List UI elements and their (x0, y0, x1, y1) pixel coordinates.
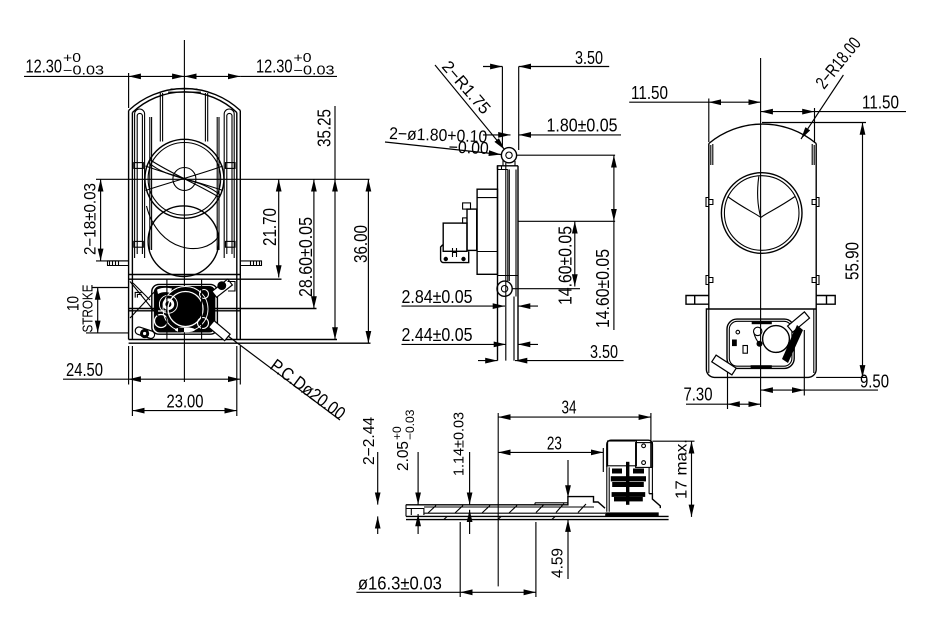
svg-text:1.14±0.03: 1.14±0.03 (451, 412, 468, 476)
svg-text:14.60±0.05: 14.60±0.05 (593, 249, 613, 328)
svg-text:4.59: 4.59 (550, 548, 567, 578)
svg-text:35.25: 35.25 (315, 109, 335, 147)
svg-text:2.84±0.05: 2.84±0.05 (402, 287, 473, 307)
svg-text:2.05: 2.05 (395, 441, 412, 471)
svg-text:7.30: 7.30 (684, 385, 713, 405)
svg-text:34: 34 (562, 398, 577, 418)
svg-text:STROKE: STROKE (80, 285, 97, 333)
svg-text:14.60±0.05: 14.60±0.05 (556, 226, 576, 305)
svg-text:−0.03: −0.03 (403, 409, 417, 440)
svg-text:3.50: 3.50 (575, 48, 603, 68)
svg-text:23: 23 (547, 434, 562, 454)
svg-text:−0.03: −0.03 (294, 64, 335, 78)
svg-text:11.50: 11.50 (631, 83, 668, 103)
svg-text:2.44±0.05: 2.44±0.05 (402, 325, 473, 345)
svg-text:1.80±0.05: 1.80±0.05 (547, 116, 618, 136)
svg-text:24.50: 24.50 (66, 360, 103, 380)
svg-text:ø16.3±0.03: ø16.3±0.03 (358, 574, 442, 594)
svg-text:+0: +0 (390, 426, 404, 440)
svg-text:2−18±0.03: 2−18±0.03 (81, 183, 100, 255)
svg-text:3.50: 3.50 (590, 342, 618, 362)
svg-text:11.50: 11.50 (862, 93, 899, 113)
svg-text:9.50: 9.50 (860, 372, 889, 392)
svg-text:23.00: 23.00 (167, 392, 204, 412)
svg-text:17 max.: 17 max. (674, 439, 691, 499)
svg-text:2−2.44: 2−2.44 (361, 417, 378, 465)
svg-text:−0.00: −0.00 (448, 138, 489, 158)
svg-text:21.70: 21.70 (260, 208, 280, 246)
svg-text:55.90: 55.90 (843, 242, 863, 280)
svg-text:28.60±0.05: 28.60±0.05 (296, 217, 316, 297)
svg-text:−0.03: −0.03 (63, 64, 104, 78)
svg-text:12.30: 12.30 (26, 57, 63, 77)
svg-text:12.30: 12.30 (256, 57, 293, 77)
